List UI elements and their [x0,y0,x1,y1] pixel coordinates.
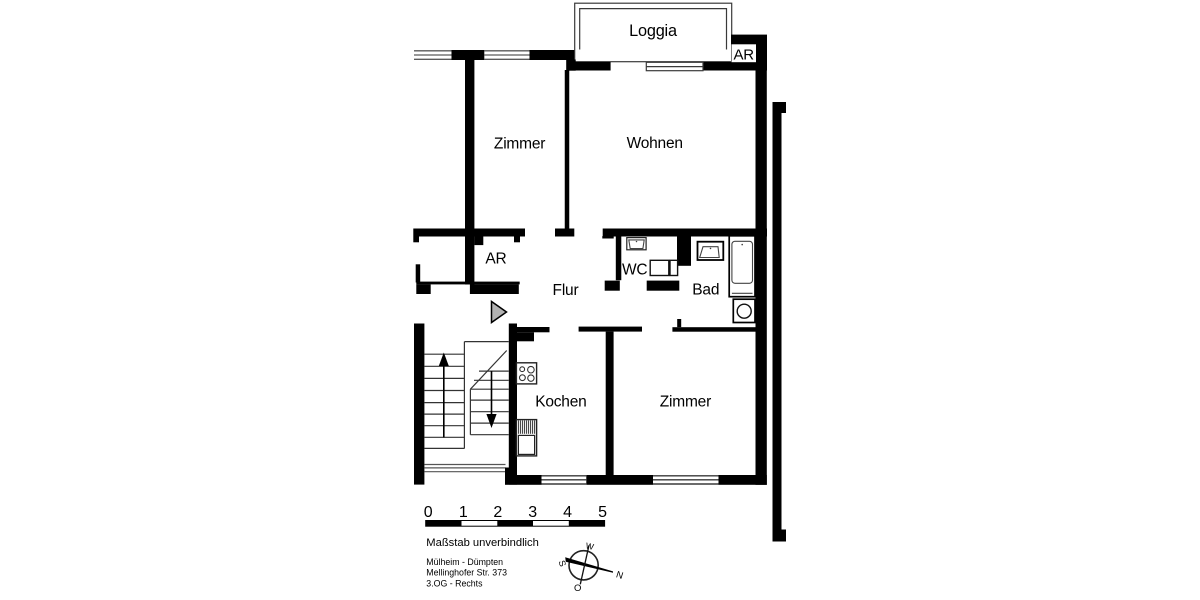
svg-text:AR: AR [485,250,506,267]
svg-text:1: 1 [459,504,468,521]
svg-text:O: O [574,583,581,594]
svg-text:3.OG - Rechts: 3.OG - Rechts [426,578,483,588]
svg-text:Zimmer: Zimmer [660,393,711,410]
svg-text:Kochen: Kochen [535,393,586,410]
svg-text:AR: AR [733,46,754,63]
svg-text:Flur: Flur [553,282,579,299]
svg-text:WC: WC [622,262,647,279]
svg-text:2: 2 [493,504,502,521]
svg-text:4: 4 [563,504,572,521]
svg-text:0: 0 [424,504,433,521]
svg-text:Mülheim - Dümpten: Mülheim - Dümpten [426,557,503,567]
svg-text:5: 5 [598,504,607,521]
svg-text:Wohnen: Wohnen [627,135,683,152]
svg-text:3: 3 [528,504,537,521]
svg-text:Zimmer: Zimmer [494,135,545,152]
svg-text:Maßstab unverbindlich: Maßstab unverbindlich [426,537,539,549]
svg-text:Mellinghofer Str. 373: Mellinghofer Str. 373 [426,568,507,578]
svg-text:Bad: Bad [692,282,719,299]
svg-text:Loggia: Loggia [629,22,678,40]
